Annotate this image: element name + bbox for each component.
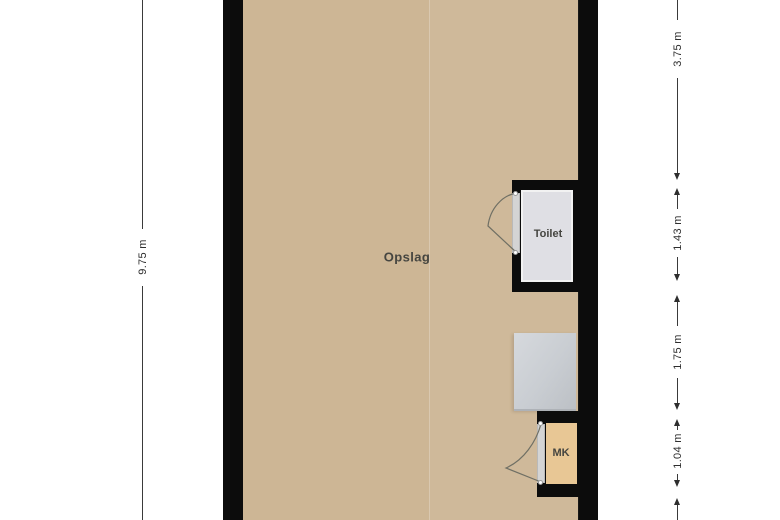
dimension-line [677,505,678,520]
mk-door-swing-icon [500,420,545,486]
dimension-line [142,286,143,520]
arrow-up-icon [674,498,680,505]
dimension-line [677,378,678,403]
dimension-label-left-height: 9.75 m [137,239,149,274]
arrow-up-icon [674,188,680,195]
toilet-door-swing-icon [480,188,520,258]
arrow-down-icon [674,403,680,410]
dimension-line [142,0,143,229]
arrow-down-icon [674,173,680,180]
dimension-label-104: 1.04 m [672,433,684,468]
dimension-line [677,426,678,430]
dimension-label-375: 3.75 m [672,31,684,66]
gray-fixture [514,333,576,411]
dimension-line [677,257,678,274]
dimension-line [677,0,678,20]
arrow-down-icon [674,274,680,281]
arrow-up-icon [674,295,680,302]
door-hinge-icon [538,480,543,485]
dimension-line [677,78,678,173]
arrow-up-icon [674,419,680,426]
door-hinge-icon [513,250,518,255]
wall-left [223,0,243,520]
dimension-label-143: 1.43 m [672,215,684,250]
arrow-down-icon [674,480,680,487]
door-hinge-icon [538,421,543,426]
dimension-line [677,302,678,326]
room-toilet-label: Toilet [534,228,563,240]
room-opslag-label: Opslag [384,250,430,265]
door-hinge-icon [513,191,518,196]
dimension-label-175: 1.75 m [672,334,684,369]
dimension-line [677,195,678,209]
floor-plan: 9.75 m Opslag Toilet MK 3.75 m 1.43 m [0,0,780,520]
room-mk-label: MK [552,447,569,459]
